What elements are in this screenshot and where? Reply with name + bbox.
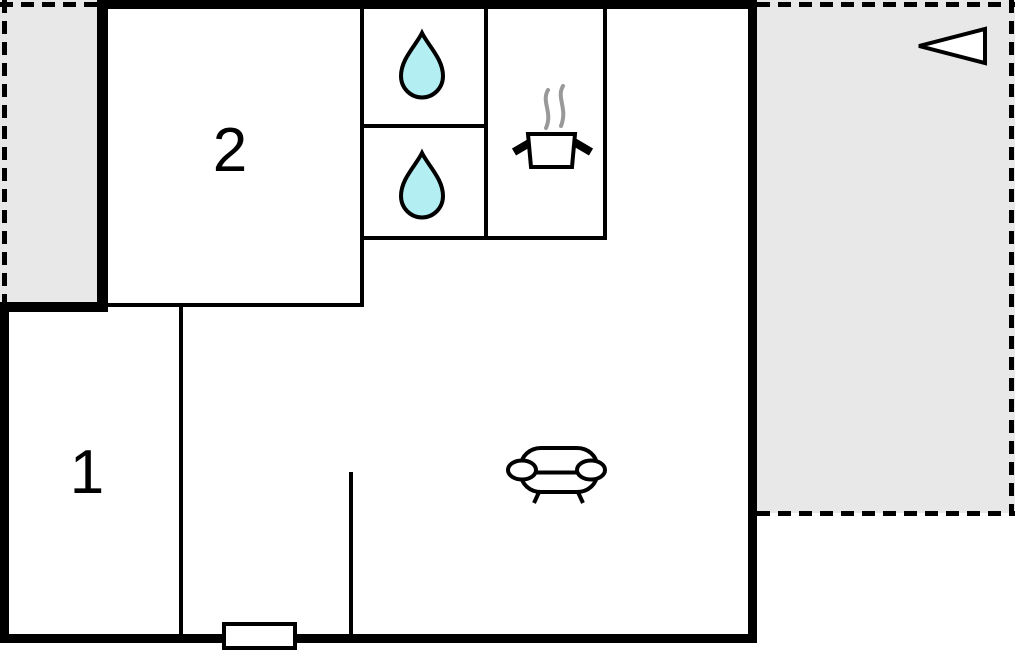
wall-room2-bottom [108,303,364,307]
terrace-left-area [0,0,100,307]
cooking-pot-icon [514,86,591,167]
water-drop-icon [401,153,443,218]
wall-bath-divider [360,124,488,128]
exterior-walls [0,0,757,643]
wall-bath-kitchen-bottom [360,236,607,240]
room-2-label: 2 [195,120,265,182]
sofa-armrest-right [577,461,605,480]
sofa-icon [508,448,605,503]
wall-right [748,0,757,643]
floorplan: 2 1 [0,0,1024,650]
room-1-label: 1 [52,442,122,504]
wall-room2-right [360,9,364,307]
door-marker [224,624,295,648]
wall-terrace-left-bottom [0,302,108,312]
wall-room2-left [97,0,108,312]
wall-room1-divider [179,307,183,643]
pot-body [528,134,575,167]
wall-left [0,302,9,643]
steam-line [561,86,564,126]
interior-walls [108,9,607,643]
wall-top [97,0,757,9]
wall-kitchen-right [603,9,607,240]
steam-line [546,90,549,128]
wall-bath-right [484,9,488,240]
wall-bottom [0,634,757,643]
terrace-left [0,0,100,307]
water-drop-icon [401,33,443,97]
wall-living-stub [349,472,353,643]
floorplan-drawing [0,0,1024,650]
pot-handle-right [574,142,591,152]
sofa-armrest-left [508,461,536,480]
terrace-right [757,0,1015,515]
terrace-right-area [757,0,1015,513]
